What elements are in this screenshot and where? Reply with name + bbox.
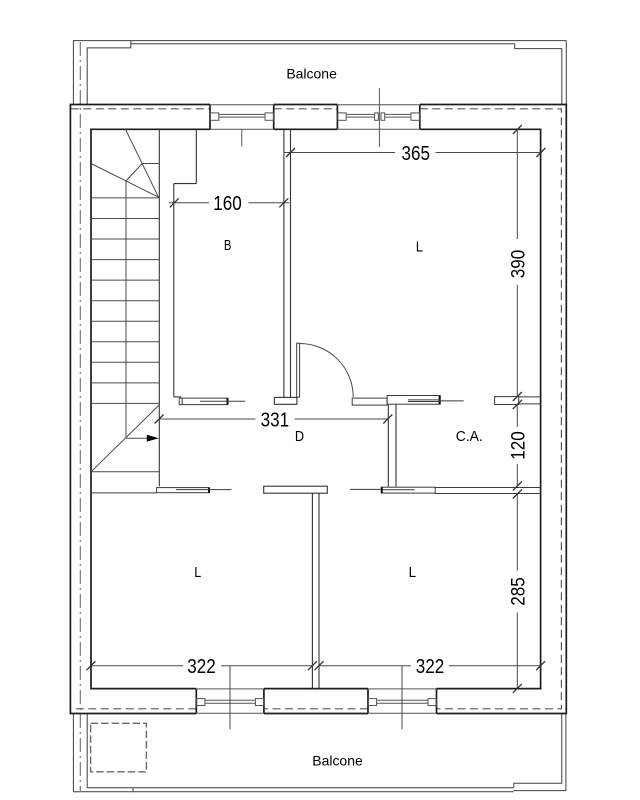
- svg-text:120: 120: [509, 431, 530, 460]
- svg-text:285: 285: [509, 577, 530, 606]
- svg-text:L: L: [409, 564, 416, 581]
- svg-text:160: 160: [213, 193, 242, 215]
- svg-text:L: L: [194, 564, 201, 581]
- svg-text:D: D: [295, 428, 304, 445]
- svg-text:C.A.: C.A.: [456, 428, 483, 445]
- svg-text:331: 331: [261, 410, 290, 432]
- svg-text:B: B: [224, 237, 232, 254]
- svg-text:L: L: [416, 239, 423, 256]
- svg-text:390: 390: [509, 250, 530, 279]
- svg-text:322: 322: [187, 656, 216, 678]
- svg-text:Balcone: Balcone: [286, 66, 337, 82]
- svg-text:322: 322: [416, 656, 445, 678]
- svg-text:365: 365: [402, 143, 431, 165]
- svg-text:Balcone: Balcone: [312, 752, 363, 768]
